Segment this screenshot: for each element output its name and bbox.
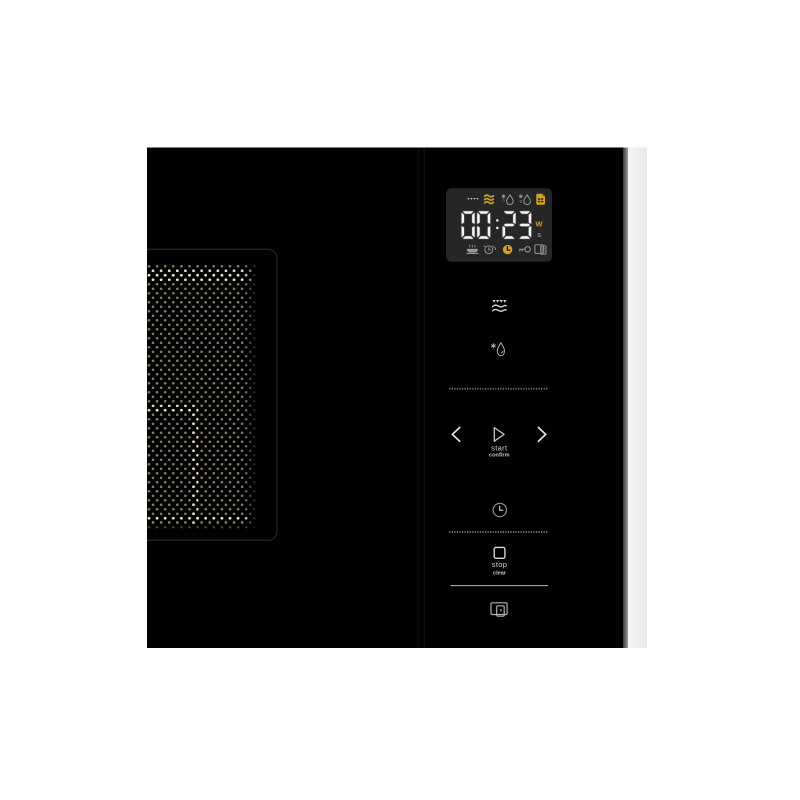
svg-text:g: g	[520, 198, 522, 203]
svg-text:s: s	[537, 232, 541, 239]
svg-text:start: start	[491, 444, 508, 453]
svg-text:h: h	[502, 198, 504, 203]
svg-text:W: W	[536, 220, 543, 229]
svg-text:confirm: confirm	[489, 453, 510, 459]
svg-text:stop: stop	[492, 560, 508, 569]
svg-text:clear: clear	[493, 571, 507, 577]
